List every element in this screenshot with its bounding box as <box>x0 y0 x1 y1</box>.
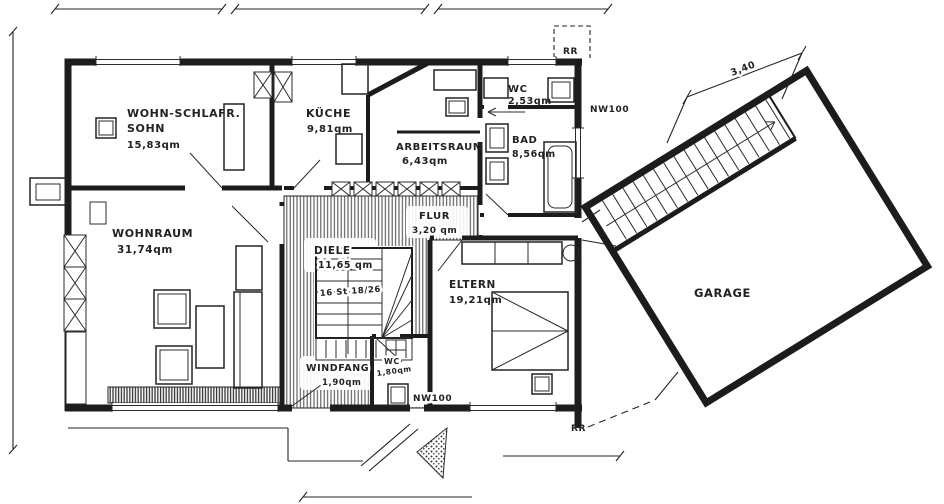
svg-text:WC: WC <box>384 357 400 366</box>
rr-top: RR <box>563 47 578 57</box>
floor-plan-drawing: 3,40 WOHN-SCHLAFR. SOHN 15,83qm KÜCHE 9,… <box>0 0 944 504</box>
label-bad: BAD 8,56qm <box>512 135 556 160</box>
entrance-path <box>68 424 447 478</box>
chimney-left-wall <box>64 235 86 404</box>
window-wc <box>508 56 556 67</box>
door-wc <box>488 108 525 116</box>
door-wohnraum <box>232 206 268 242</box>
planter-triangle <box>417 428 447 478</box>
garage <box>585 71 927 403</box>
door-bad <box>486 194 508 215</box>
svg-text:15,83qm: 15,83qm <box>127 140 180 151</box>
furniture-arbeitsraum <box>434 70 476 116</box>
svg-text:2,53qm: 2,53qm <box>508 96 552 107</box>
door-sohn <box>190 153 222 188</box>
nw100-bottom: NW100 <box>413 394 452 404</box>
svg-text:1,90qm: 1,90qm <box>322 378 362 388</box>
svg-text:11,65 qm: 11,65 qm <box>318 260 373 271</box>
entrance-steps <box>361 424 418 471</box>
door-kueche <box>294 160 320 188</box>
gate-leaf <box>655 372 678 400</box>
window-sohn <box>96 56 180 67</box>
svg-text:3,20 qm: 3,20 qm <box>412 226 457 236</box>
svg-text:WOHNRAUM: WOHNRAUM <box>112 227 193 240</box>
svg-text:BAD: BAD <box>512 135 537 146</box>
svg-text:DIELE: DIELE <box>314 245 351 257</box>
door-eltern <box>438 240 462 271</box>
furniture-eltern <box>462 242 579 394</box>
label-wohnraum: WOHNRAUM 31,74qm <box>112 227 193 256</box>
terrace-door-wohnraum <box>112 402 278 413</box>
left-bay <box>30 178 65 205</box>
svg-text:KÜCHE: KÜCHE <box>306 106 351 120</box>
svg-text:19,21qm: 19,21qm <box>449 295 502 306</box>
svg-text:6,43qm: 6,43qm <box>402 156 448 167</box>
svg-text:FLUR: FLUR <box>419 211 450 222</box>
window-bad <box>572 128 584 178</box>
svg-text:WOHN-SCHLAFR.: WOHN-SCHLAFR. <box>127 107 240 120</box>
svg-text:ELTERN: ELTERN <box>449 279 496 291</box>
terrace-door-strip <box>108 387 280 403</box>
svg-text:8,56qm: 8,56qm <box>512 149 556 160</box>
wardrobe <box>462 242 562 264</box>
label-wc: WC 2,53qm <box>508 84 552 107</box>
window-eltern <box>470 402 556 413</box>
svg-text:WC: WC <box>508 84 528 95</box>
svg-text:WINDFANG: WINDFANG <box>306 363 369 374</box>
svg-text:SOHN: SOHN <box>127 122 165 135</box>
dimension-340: 3,40 <box>667 46 806 143</box>
nw100-top: NW100 <box>590 105 629 115</box>
label-garage: GARAGE <box>694 286 751 300</box>
label-kueche: KÜCHE 9,81qm <box>306 106 353 135</box>
svg-text:ARBEITSRAUM: ARBEITSRAUM <box>396 142 483 153</box>
rr-bottom: RR <box>571 424 586 434</box>
svg-text:31,74qm: 31,74qm <box>117 244 173 256</box>
floor-plan-page: 3,40 WOHN-SCHLAFR. SOHN 15,83qm KÜCHE 9,… <box>0 0 944 504</box>
label-arbeitsraum: ARBEITSRAUM 6,43qm <box>396 142 483 167</box>
garage-stair-treads <box>594 99 790 244</box>
svg-text:9,81qm: 9,81qm <box>307 124 353 135</box>
window-kueche <box>292 56 356 67</box>
